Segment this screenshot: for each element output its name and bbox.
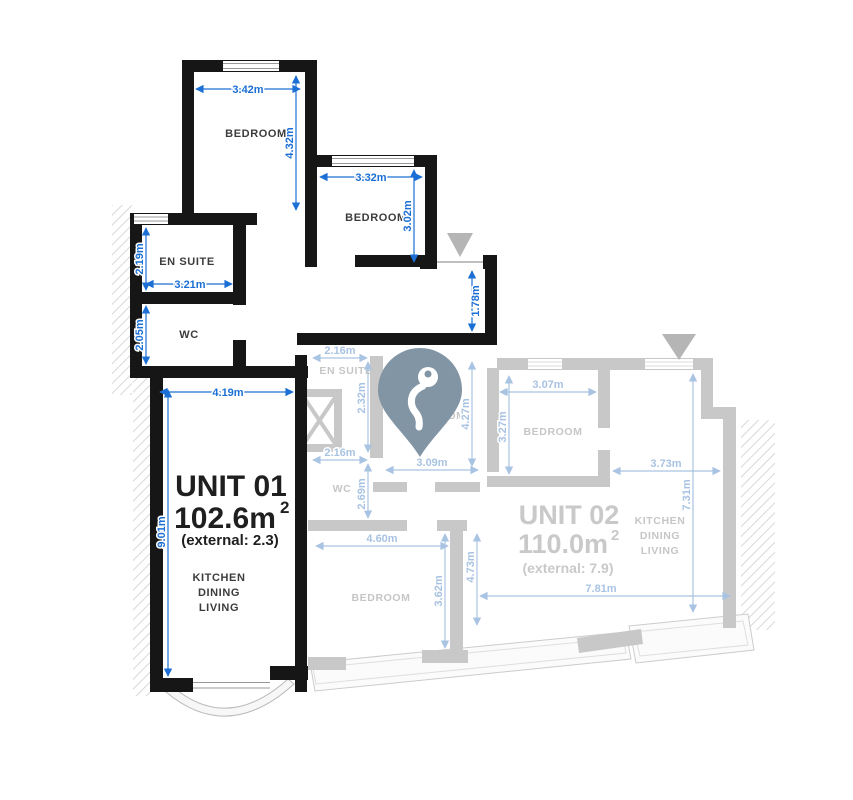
floorplan-drawing: EN SUITE WC BEDROOM BEDROOM BEDROOM KITC… [0, 0, 853, 800]
unit2-title: UNIT 02 [519, 500, 620, 530]
svg-text:3.02m: 3.02m [402, 200, 414, 231]
svg-text:3.73m: 3.73m [650, 458, 681, 470]
unit2-external-area: (external: 7.9) [522, 560, 613, 576]
unit1-title: UNIT 01 [175, 470, 287, 503]
unit1-bedroom2-label: BEDROOM [345, 212, 407, 224]
unit2-wc-label: WC [333, 483, 352, 495]
unit2-bedroom-bottom-label: BEDROOM [351, 592, 410, 604]
unit1-area-sup: 2 [280, 498, 289, 517]
location-pin-icon[interactable] [378, 348, 462, 457]
svg-text:2.16m: 2.16m [324, 345, 355, 357]
unit2-area: 110.0m [518, 529, 608, 559]
unit1-entrance-arrow-icon [447, 233, 473, 257]
svg-text:LIVING: LIVING [199, 602, 239, 614]
svg-text:1.78m: 1.78m [470, 285, 482, 316]
svg-text:3.07m: 3.07m [532, 379, 563, 391]
svg-text:2.69m: 2.69m [356, 478, 368, 509]
svg-text:4.73m: 4.73m [465, 551, 477, 582]
svg-text:KITCHEN: KITCHEN [192, 572, 245, 584]
unit1-wc-label: WC [179, 329, 199, 341]
unit1-kitchen-label: KITCHEN DINING LIVING [192, 572, 245, 614]
unit2-area-sup: 2 [611, 527, 619, 544]
svg-text:KITCHEN: KITCHEN [635, 515, 686, 527]
svg-text:2.19m: 2.19m [134, 243, 146, 274]
svg-text:4.32m: 4.32m [284, 127, 296, 158]
svg-text:DINING: DINING [198, 587, 240, 599]
svg-text:3.42m: 3.42m [232, 84, 263, 96]
unit1-ensuite-label: EN SUITE [159, 256, 215, 268]
svg-text:3.09m: 3.09m [416, 457, 447, 469]
unit2-bedroom-top-label: BEDROOM [523, 426, 582, 438]
unit1-bedroom1-label: BEDROOM [225, 128, 287, 140]
unit1-area: 102.6m [174, 502, 276, 535]
unit2-balconies [310, 614, 754, 691]
unit2-ensuite-label: EN SUITE [319, 365, 372, 377]
svg-text:3.21m: 3.21m [174, 279, 205, 291]
svg-text:LIVING: LIVING [641, 545, 680, 557]
svg-text:2.05m: 2.05m [134, 319, 146, 350]
unit2-kitchen-label: KITCHEN DINING LIVING [635, 515, 686, 557]
svg-text:4.27m: 4.27m [460, 398, 472, 429]
svg-text:3.62m: 3.62m [433, 575, 445, 606]
unit2-entrance-arrow-icon [662, 334, 696, 360]
svg-text:3.27m: 3.27m [497, 411, 509, 442]
svg-text:3.32m: 3.32m [355, 172, 386, 184]
svg-text:7.31m: 7.31m [681, 479, 693, 510]
unit1-external-area: (external: 2.3) [181, 532, 279, 549]
svg-text:2.16m: 2.16m [324, 447, 355, 459]
floorplan-canvas: EN SUITE WC BEDROOM BEDROOM BEDROOM KITC… [0, 0, 853, 800]
svg-text:DINING: DINING [640, 530, 680, 542]
svg-text:4.19m: 4.19m [212, 387, 243, 399]
svg-text:7.81m: 7.81m [585, 583, 616, 595]
svg-text:2.32m: 2.32m [356, 382, 368, 413]
svg-text:9.01m: 9.01m [156, 516, 168, 547]
svg-text:4.60m: 4.60m [366, 533, 397, 545]
